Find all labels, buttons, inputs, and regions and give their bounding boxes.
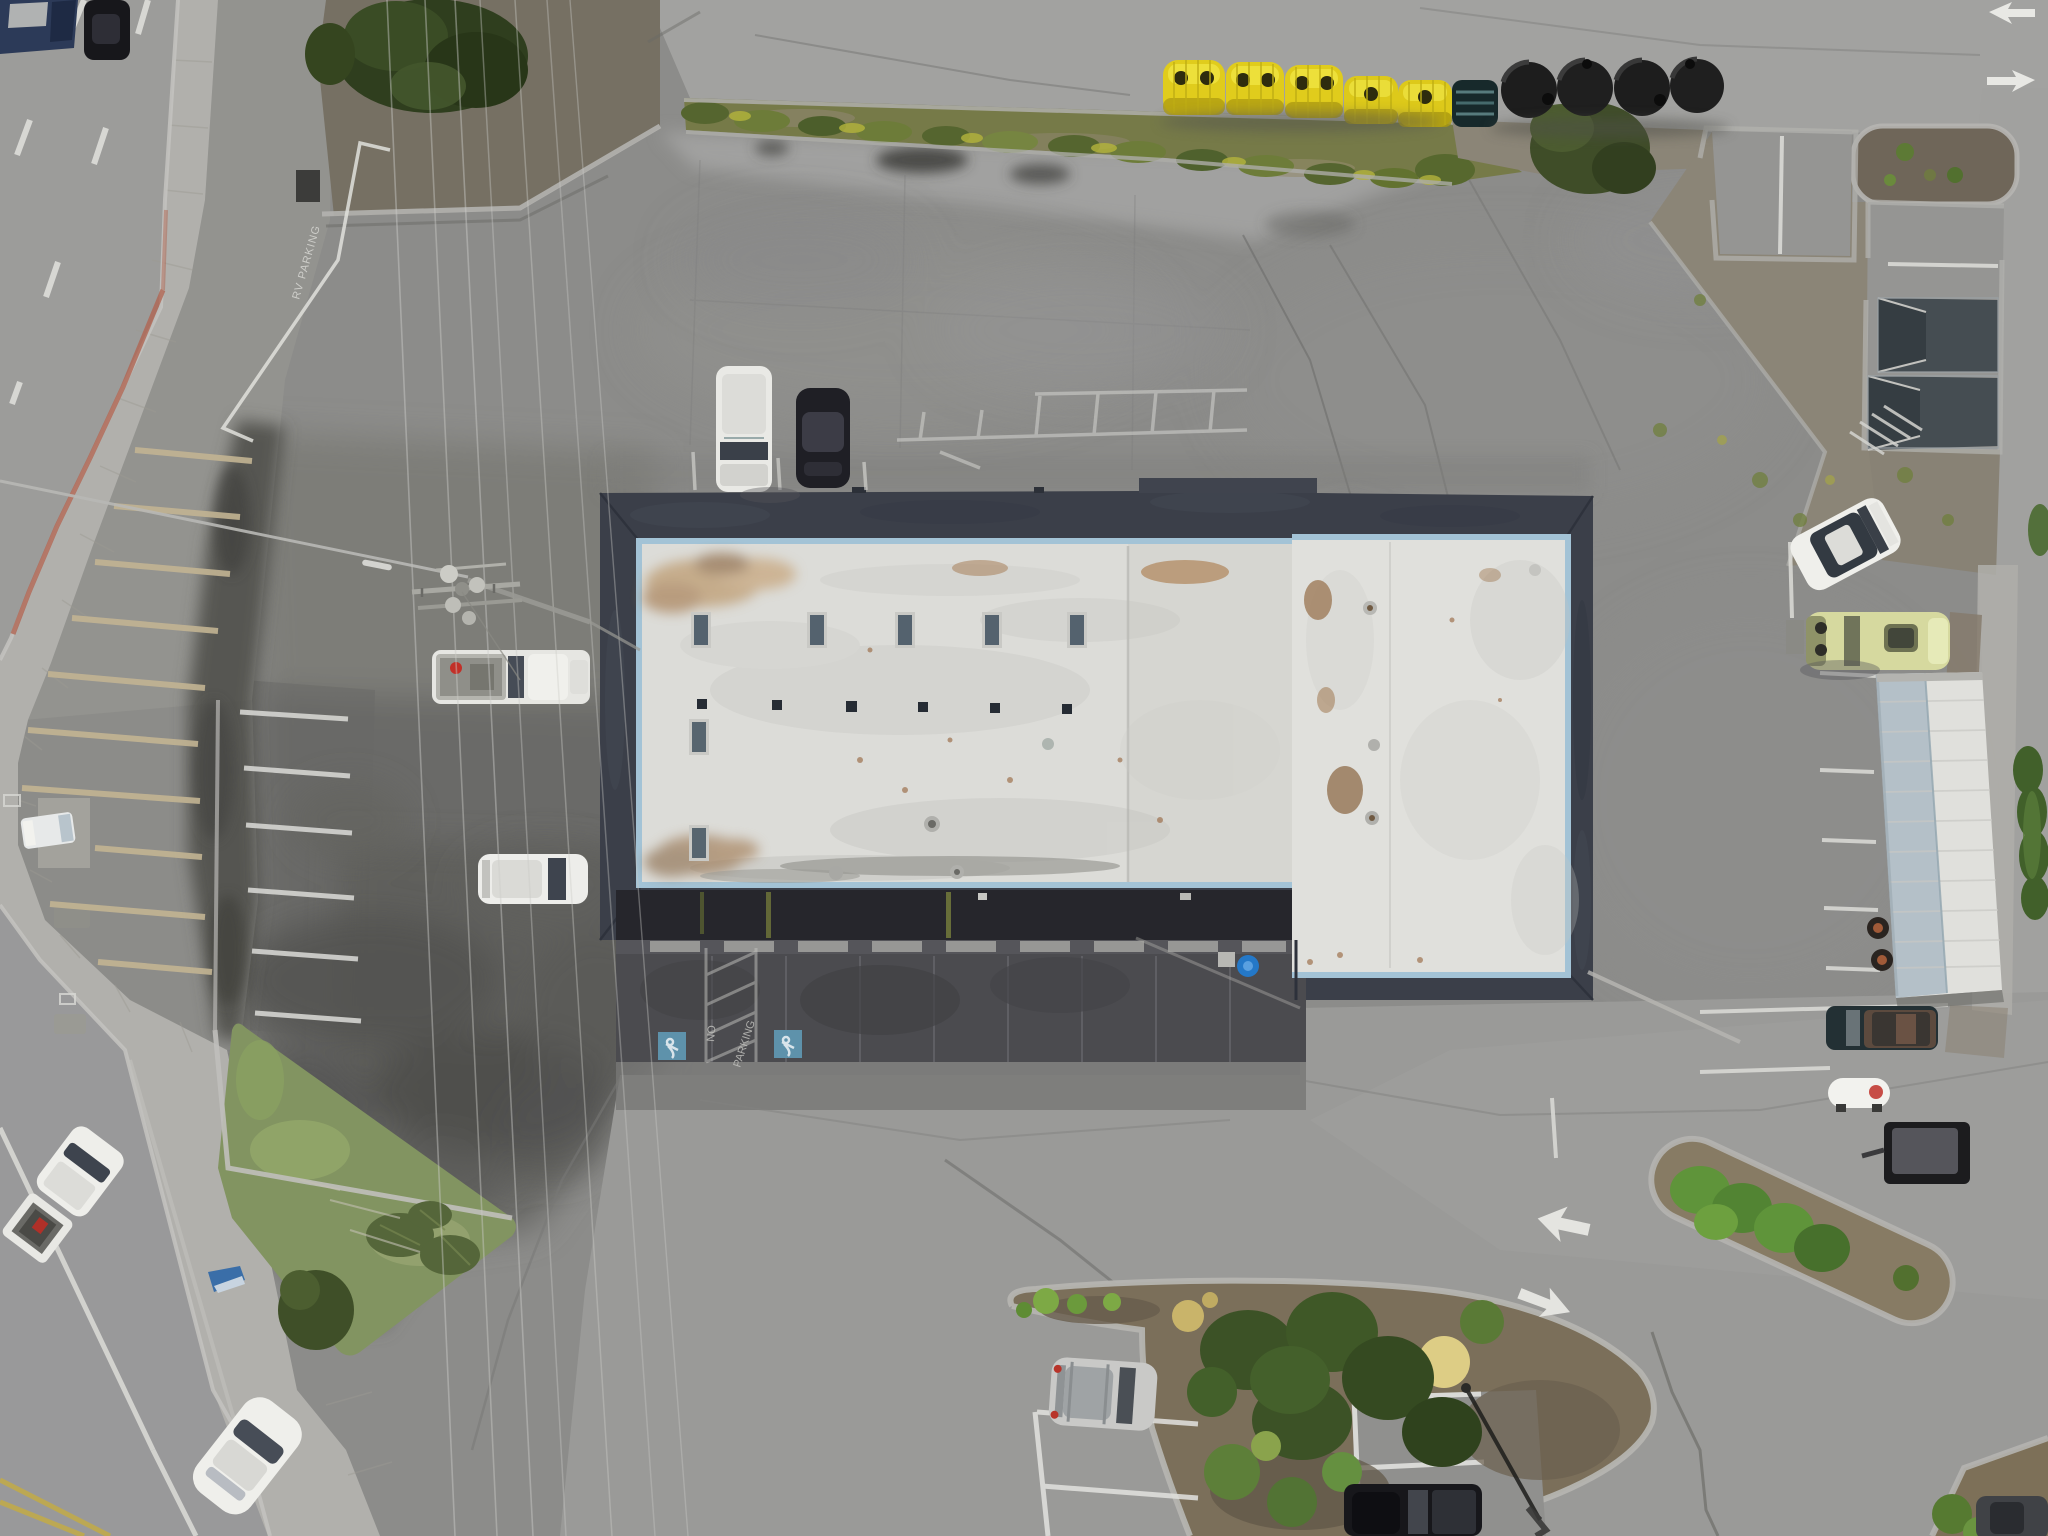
svg-text:NO: NO xyxy=(705,1024,718,1042)
